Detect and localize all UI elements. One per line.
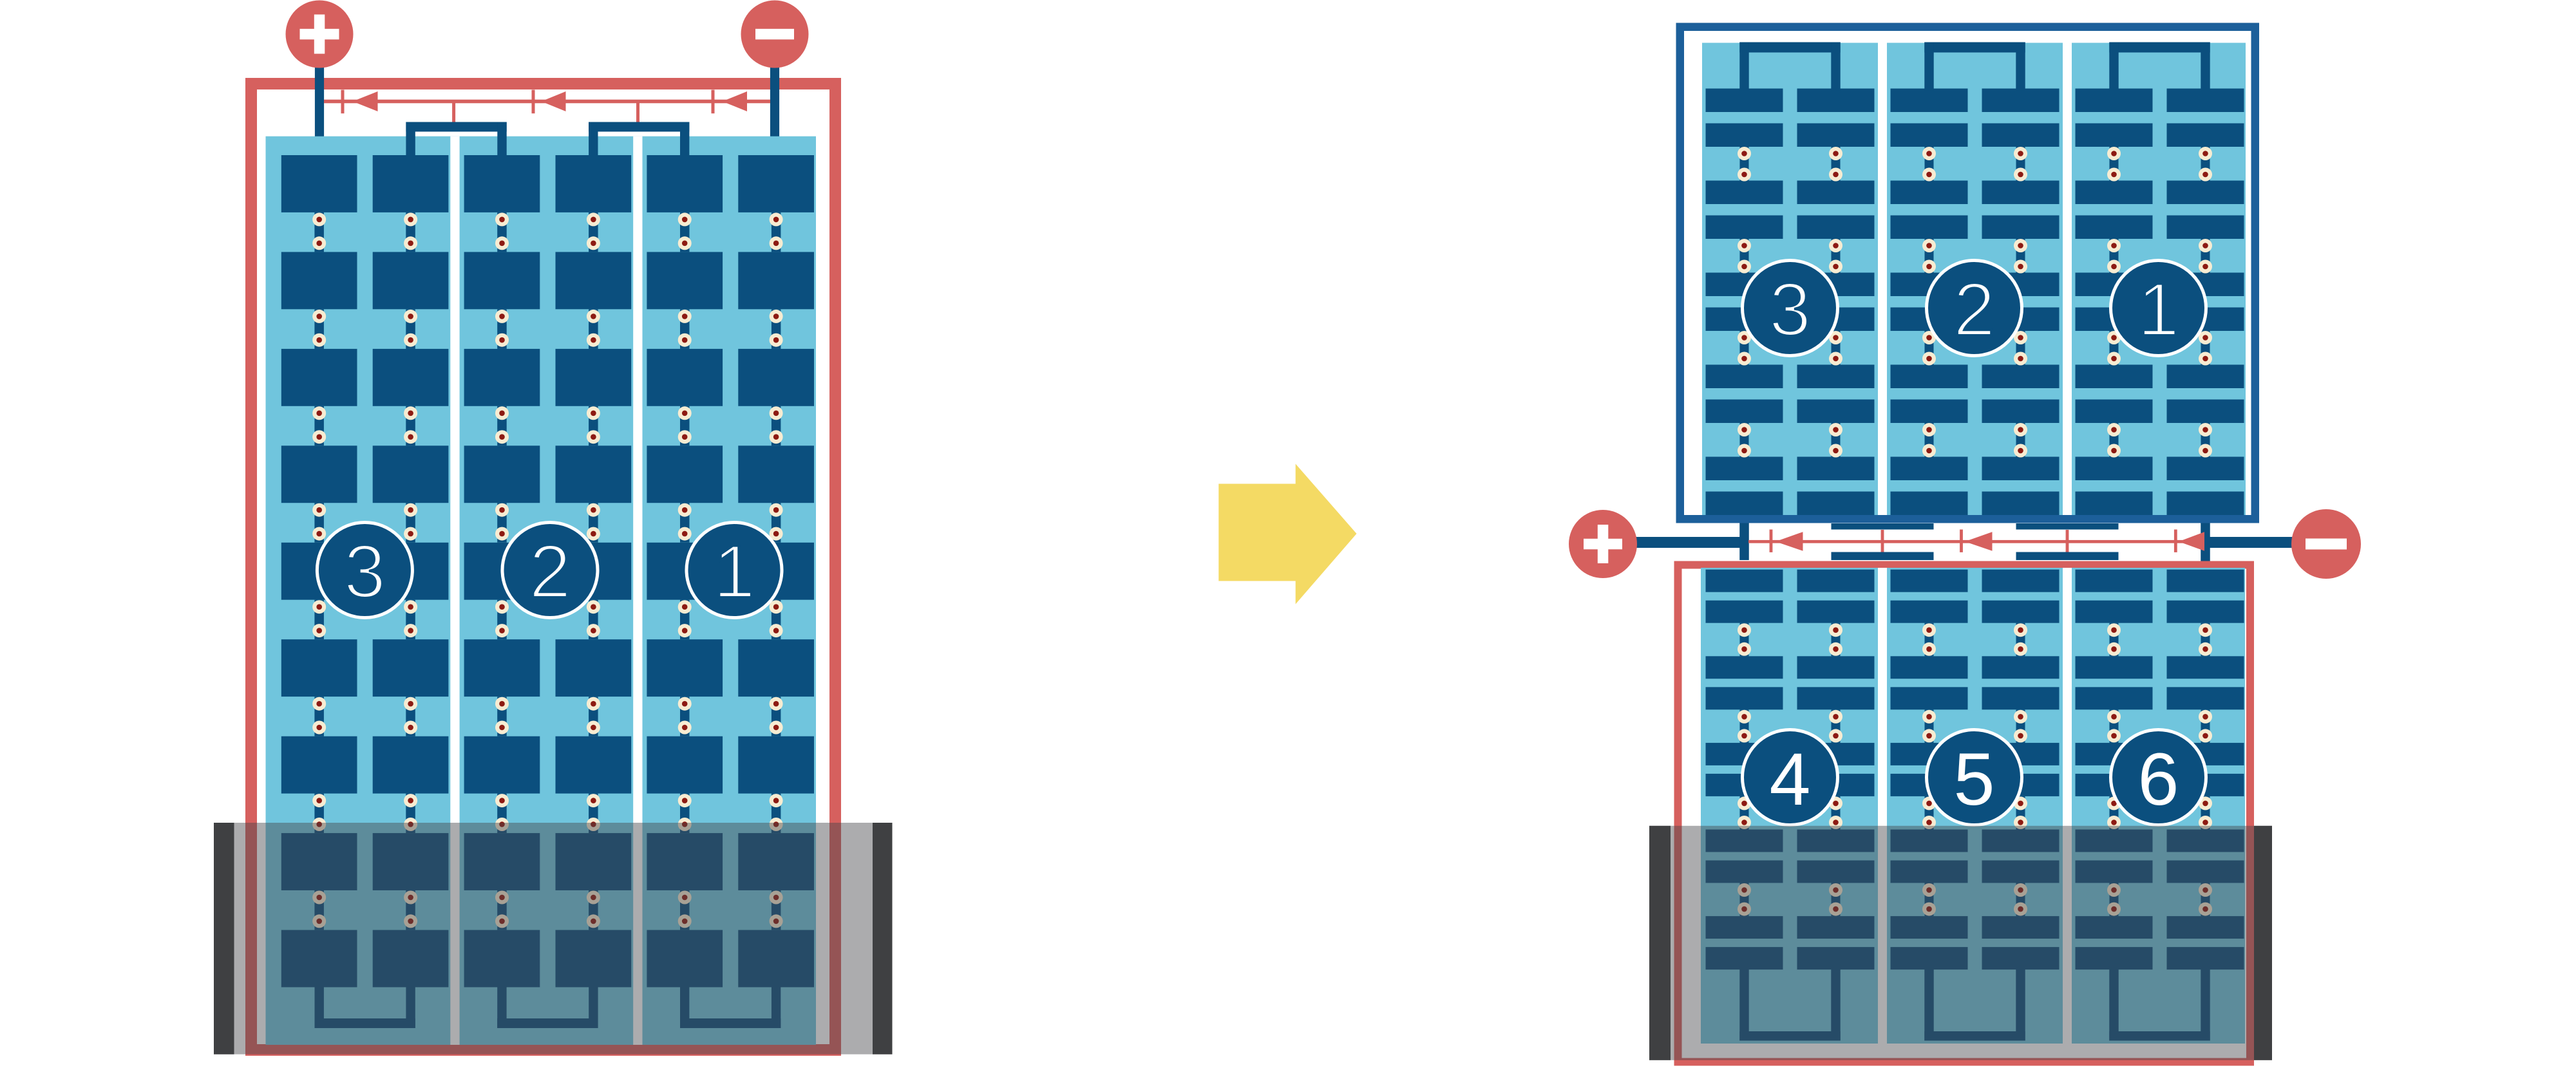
svg-text:1: 1 — [2137, 267, 2179, 351]
svg-text:3: 3 — [1769, 267, 1811, 351]
svg-text:2: 2 — [1953, 267, 1995, 351]
svg-text:4: 4 — [1770, 738, 1811, 821]
svg-text:6: 6 — [2138, 738, 2179, 821]
svg-text:2: 2 — [529, 529, 571, 614]
svg-text:1: 1 — [713, 529, 755, 614]
svg-text:5: 5 — [1954, 738, 1995, 821]
svg-text:3: 3 — [344, 529, 386, 614]
